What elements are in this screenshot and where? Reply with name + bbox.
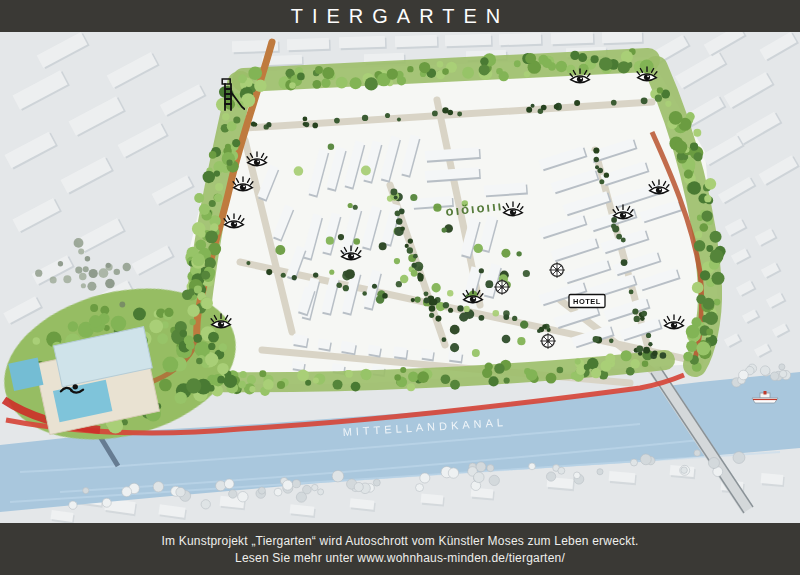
caption-line-1: Im Kunstprojekt „Tiergarten“ wird Autosc… <box>161 534 638 548</box>
svg-text:HOTEL: HOTEL <box>573 297 601 306</box>
title-bar: TIERGARTEN <box>0 0 800 32</box>
hotel-label: HOTEL <box>569 295 605 308</box>
city-plan-map: oıŏıoııı HOTEL MITTELLANDKANAL <box>0 32 800 523</box>
map-canvas: oıŏıoııı HOTEL MITTELLANDKANAL <box>0 32 800 523</box>
caption-bar: Im Kunstprojekt „Tiergarten“ wird Autosc… <box>0 523 800 575</box>
page-title: TIERGARTEN <box>291 5 510 28</box>
caption-line-2: Lesen Sie mehr unter www.wohnhaus-minden… <box>235 551 565 565</box>
map-artwork <box>0 32 800 523</box>
screenshot-frame: TIERGARTEN <box>0 0 800 575</box>
